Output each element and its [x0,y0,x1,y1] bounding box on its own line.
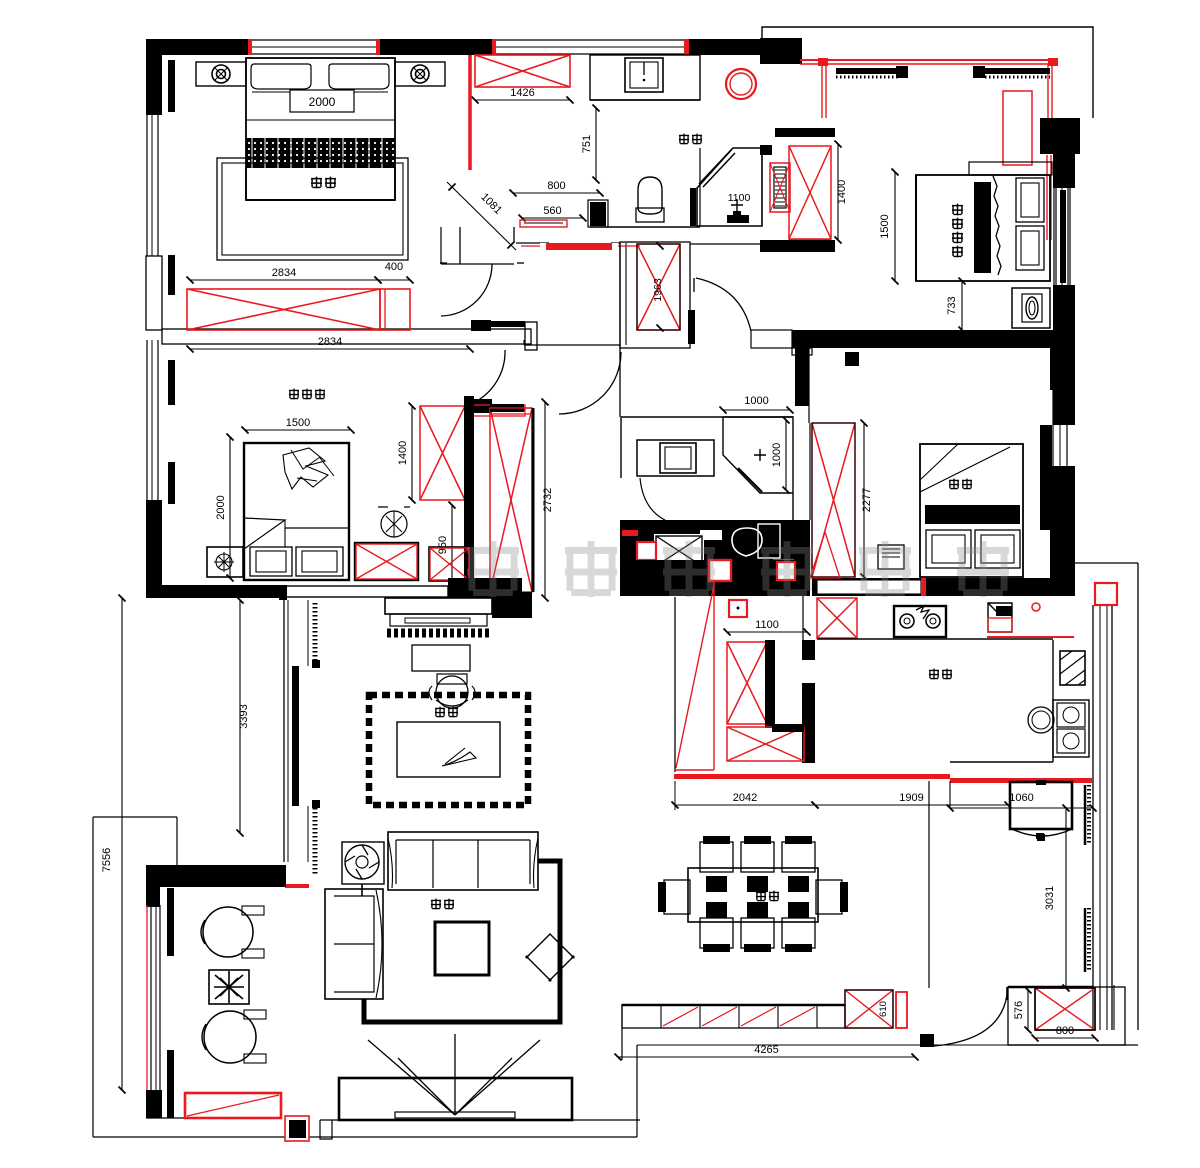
svg-text:610: 610 [878,1001,889,1017]
svg-text:4265: 4265 [754,1044,778,1056]
svg-text:1100: 1100 [728,192,751,204]
svg-text:560: 560 [543,205,561,217]
svg-text:733: 733 [946,296,958,314]
svg-text:1060: 1060 [1009,792,1033,804]
svg-text:2000: 2000 [309,95,336,109]
svg-text:1000: 1000 [771,443,783,467]
svg-text:3393: 3393 [238,704,250,728]
svg-text:1426: 1426 [510,87,534,99]
svg-text:1963: 1963 [652,278,664,302]
svg-text:2834: 2834 [272,267,296,279]
svg-text:1400: 1400 [836,180,848,204]
svg-text:800: 800 [547,180,565,192]
svg-text:400: 400 [385,261,403,273]
svg-text:800: 800 [1056,1025,1074,1037]
svg-text:1500: 1500 [879,214,891,238]
svg-text:2000: 2000 [215,495,227,519]
svg-text:576: 576 [1013,1001,1025,1019]
svg-text:1000: 1000 [744,395,768,407]
svg-text:2732: 2732 [542,488,554,512]
svg-text:2042: 2042 [733,792,757,804]
svg-text:1400: 1400 [397,441,409,465]
svg-text:751: 751 [581,135,593,153]
svg-text:950: 950 [437,536,449,554]
svg-text:7556: 7556 [101,848,113,872]
svg-text:1909: 1909 [899,792,923,804]
svg-text:2277: 2277 [861,488,873,512]
svg-text:1500: 1500 [286,417,310,429]
svg-text:1100: 1100 [755,619,779,631]
svg-text:2834: 2834 [318,336,342,348]
svg-text:3031: 3031 [1044,886,1056,910]
